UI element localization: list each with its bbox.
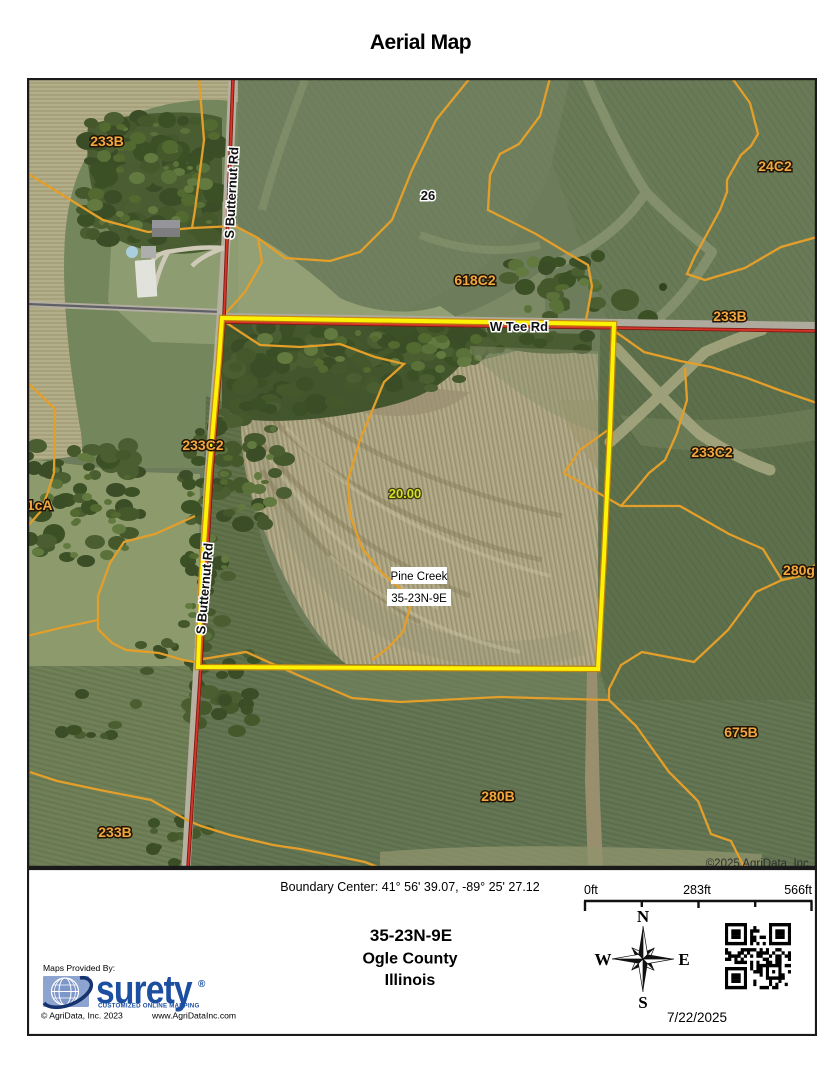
svg-text:W: W bbox=[595, 950, 612, 969]
svg-text:E: E bbox=[678, 950, 689, 969]
svg-text:Boundary Center: 41° 56' 39.07: Boundary Center: 41° 56' 39.07, -89° 25'… bbox=[280, 880, 539, 894]
svg-text:7/22/2025: 7/22/2025 bbox=[667, 1010, 727, 1025]
svg-text:S: S bbox=[638, 993, 647, 1012]
svg-text:233B: 233B bbox=[90, 133, 123, 149]
svg-text:233C2: 233C2 bbox=[691, 444, 732, 460]
svg-text:35-23N-9E: 35-23N-9E bbox=[370, 926, 452, 945]
svg-text:24C2: 24C2 bbox=[758, 158, 792, 174]
svg-text:www.AgriDataInc.com: www.AgriDataInc.com bbox=[151, 1011, 236, 1021]
svg-text:W Tee Rd: W Tee Rd bbox=[490, 319, 548, 334]
svg-text:283ft: 283ft bbox=[683, 883, 711, 897]
svg-text:61cA: 61cA bbox=[27, 497, 52, 513]
svg-text:20.00: 20.00 bbox=[389, 486, 422, 501]
svg-text:Pine Creek: Pine Creek bbox=[391, 571, 448, 583]
svg-text:675B: 675B bbox=[724, 724, 757, 740]
svg-text:233B: 233B bbox=[98, 824, 131, 840]
svg-text:CUSTOMIZED ONLINE MAPPING: CUSTOMIZED ONLINE MAPPING bbox=[98, 1003, 199, 1010]
svg-text:618C2: 618C2 bbox=[454, 272, 495, 288]
svg-text:280g: 280g bbox=[783, 562, 815, 578]
svg-text:233B: 233B bbox=[713, 308, 746, 324]
svg-text:N: N bbox=[637, 907, 650, 926]
svg-text:0ft: 0ft bbox=[584, 883, 598, 897]
svg-text:566ft: 566ft bbox=[784, 883, 812, 897]
svg-text:26: 26 bbox=[421, 188, 435, 203]
svg-text:35-23N-9E: 35-23N-9E bbox=[391, 593, 447, 605]
svg-text:280B: 280B bbox=[481, 788, 514, 804]
svg-text:Illinois: Illinois bbox=[385, 972, 436, 989]
svg-text:233C2: 233C2 bbox=[182, 437, 223, 453]
svg-text:© AgriData, Inc. 2023: © AgriData, Inc. 2023 bbox=[41, 1011, 123, 1021]
svg-text:Ogle County: Ogle County bbox=[362, 951, 457, 968]
svg-text:®: ® bbox=[198, 979, 206, 990]
